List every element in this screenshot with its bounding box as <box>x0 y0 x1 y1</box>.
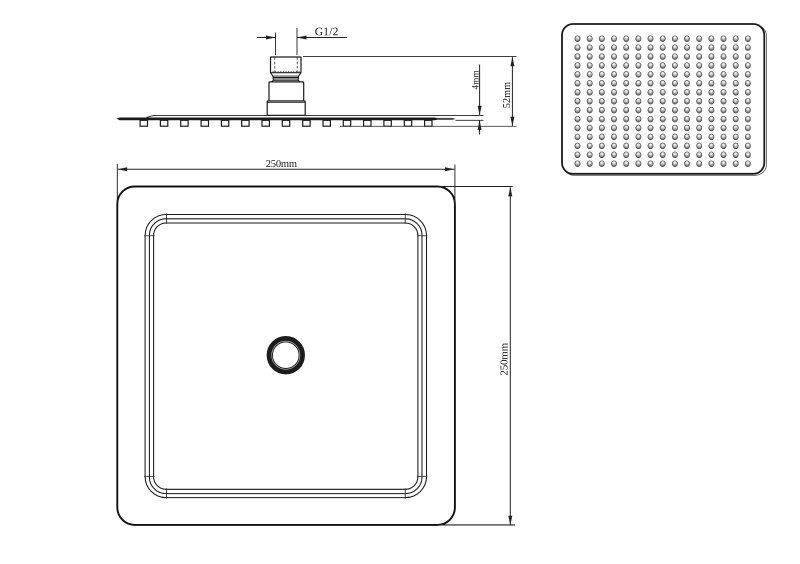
svg-text:52mm: 52mm <box>502 82 513 108</box>
svg-text:250mm: 250mm <box>266 159 297 170</box>
svg-text:G1/2: G1/2 <box>315 26 339 38</box>
svg-text:4mm: 4mm <box>471 70 481 89</box>
svg-text:250mm: 250mm <box>498 342 510 375</box>
